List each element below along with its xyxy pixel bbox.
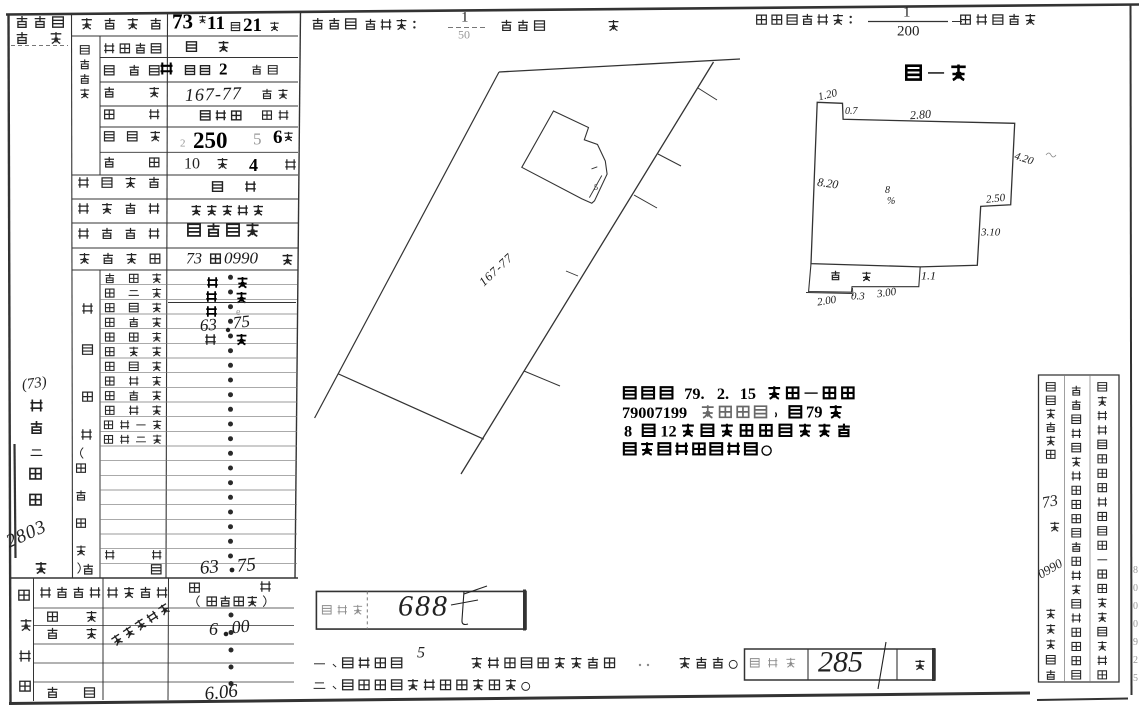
svg-text:0: 0 — [1133, 583, 1138, 594]
svg-text:75: 75 — [232, 312, 251, 333]
svg-text:2: 2 — [1133, 655, 1138, 666]
svg-text:3.10: 3.10 — [980, 227, 1001, 239]
svg-text:21: 21 — [243, 15, 262, 36]
svg-text:5: 5 — [417, 645, 425, 662]
svg-text:1.1: 1.1 — [921, 268, 936, 282]
svg-text:11: 11 — [207, 13, 225, 34]
svg-text:200: 200 — [897, 24, 920, 40]
svg-text:5: 5 — [253, 129, 262, 148]
svg-text:6: 6 — [273, 127, 283, 148]
svg-text:15: 15 — [740, 384, 756, 403]
svg-text:5: 5 — [1133, 673, 1138, 684]
svg-text:5: 5 — [594, 183, 598, 192]
svg-text:250: 250 — [193, 128, 228, 153]
svg-text:79: 79 — [806, 402, 823, 421]
svg-text:285: 285 — [818, 645, 863, 678]
svg-text:10: 10 — [184, 156, 200, 173]
svg-text:167-77: 167-77 — [185, 83, 243, 105]
svg-text:00: 00 — [231, 616, 251, 638]
svg-text:6.06: 6.06 — [204, 680, 240, 704]
svg-text:8: 8 — [1133, 565, 1138, 576]
svg-text:73: 73 — [172, 9, 193, 33]
svg-text:79.: 79. — [684, 384, 704, 403]
svg-text:%: % — [887, 196, 895, 207]
svg-text:688: 688 — [398, 589, 449, 622]
svg-text:2: 2 — [219, 59, 228, 78]
svg-text:9: 9 — [1133, 637, 1138, 648]
svg-text:73: 73 — [186, 251, 202, 268]
svg-text:2: 2 — [180, 138, 186, 150]
svg-text:8.20: 8.20 — [817, 175, 840, 192]
svg-text:2.80: 2.80 — [909, 107, 931, 122]
svg-text:0: 0 — [1133, 601, 1138, 612]
svg-text:0990: 0990 — [224, 248, 259, 267]
svg-text:0.3: 0.3 — [851, 291, 865, 303]
svg-text:8: 8 — [624, 421, 632, 440]
svg-text:75: 75 — [236, 554, 257, 577]
svg-text:2.: 2. — [717, 384, 729, 403]
svg-text:73: 73 — [1041, 492, 1060, 512]
svg-text:6: 6 — [209, 619, 218, 639]
svg-text:4: 4 — [249, 155, 258, 175]
svg-text:79007199: 79007199 — [622, 403, 687, 422]
svg-text:0: 0 — [1133, 619, 1138, 630]
svg-text:1: 1 — [461, 10, 469, 26]
svg-text:63: 63 — [199, 556, 220, 579]
svg-text:1: 1 — [903, 5, 911, 21]
svg-text:0.7: 0.7 — [845, 106, 859, 117]
svg-text:2.50: 2.50 — [985, 192, 1006, 206]
svg-text:12: 12 — [660, 421, 676, 440]
svg-text:50: 50 — [458, 27, 470, 41]
svg-text:8: 8 — [885, 185, 890, 196]
svg-text:63: 63 — [199, 315, 217, 335]
